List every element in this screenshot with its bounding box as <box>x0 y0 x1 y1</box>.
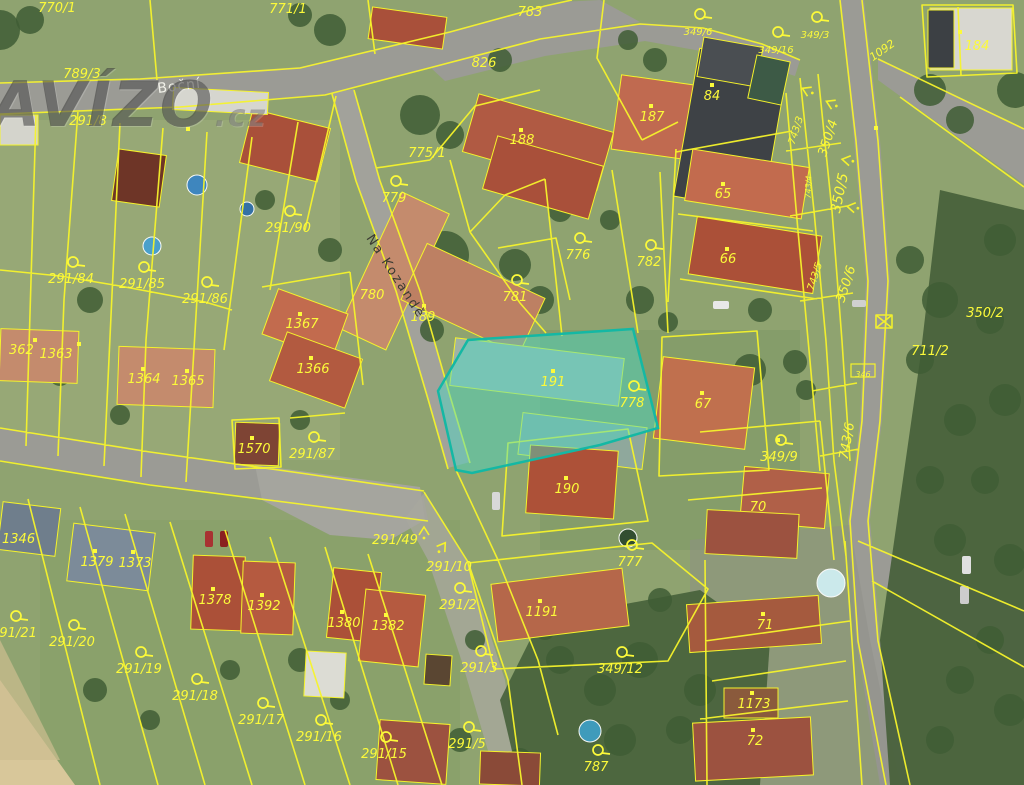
tree <box>971 466 999 494</box>
parcel-number: 291/20 <box>49 635 95 650</box>
parcel-number: 291/90 <box>265 221 311 236</box>
tree <box>314 14 346 46</box>
parcel-number: 291/49 <box>372 533 418 548</box>
parcel-label-1373: 1373 <box>118 556 151 571</box>
tree <box>290 410 310 430</box>
building-dot <box>186 127 190 131</box>
parcel-number: 1365 <box>171 374 204 389</box>
building <box>693 717 814 781</box>
parcel-label-789/3: 789/3 <box>63 67 100 82</box>
parcel-number: 291/2 <box>439 598 476 613</box>
parcel-number: 67 <box>695 397 712 412</box>
parcel-label-775/1: 775/1 <box>408 146 445 161</box>
tree <box>83 678 107 702</box>
parcel-number: 291/10 <box>426 560 472 575</box>
building-dot <box>551 369 555 373</box>
parcel-label-826: 826 <box>472 56 497 71</box>
building-dot <box>250 436 254 440</box>
parcel-label-67: 67 <box>695 397 712 412</box>
building-dot <box>761 612 765 616</box>
parcel-number: 70 <box>750 500 767 515</box>
tree <box>465 630 485 650</box>
parcel-number: 1392 <box>247 599 280 614</box>
parcel-number: 776 <box>566 248 591 263</box>
building <box>0 115 38 145</box>
building <box>112 149 167 207</box>
parcel-label-191: 191 <box>541 375 566 390</box>
parcel-label-1191: 1191 <box>525 605 558 620</box>
parcel-number: 65 <box>715 187 732 202</box>
tree <box>600 210 620 230</box>
parcel-number: 777 <box>618 555 644 570</box>
building <box>304 651 346 698</box>
tree <box>618 30 638 50</box>
tree <box>604 724 636 756</box>
parcel-number: 781 <box>503 290 528 305</box>
parcel-number: 188 <box>510 133 535 148</box>
tree <box>643 48 667 72</box>
parcel-number: 291/85 <box>119 277 165 292</box>
building <box>241 561 295 635</box>
building <box>479 751 540 785</box>
building-dot <box>874 126 878 130</box>
parcel-number: 291/87 <box>289 447 335 462</box>
parcel-number: 291/18 <box>172 689 218 704</box>
parcel-number: 743/4 <box>804 175 814 198</box>
pool <box>817 569 845 597</box>
tree <box>944 404 976 436</box>
building-dot <box>538 599 542 603</box>
parcel-number: 291/16 <box>296 730 342 745</box>
parcel-number: 349/12 <box>597 662 643 677</box>
tree <box>255 190 275 210</box>
parcel-number: 349/9 <box>760 450 797 465</box>
parcel-number: 783 <box>518 5 543 20</box>
building-dot <box>141 367 145 371</box>
parcel-label-771/1: 771/1 <box>269 2 306 17</box>
parcel-number: 789/3 <box>63 67 100 82</box>
car <box>205 531 213 547</box>
car <box>713 301 729 309</box>
parcel-label-783: 783 <box>518 5 543 20</box>
tree <box>77 287 103 313</box>
parcel-label-72: 72 <box>747 734 764 749</box>
pool <box>143 237 161 255</box>
tree <box>946 666 974 694</box>
parcel-number: 775/1 <box>408 146 445 161</box>
tree <box>110 405 130 425</box>
parcel-label-70: 70 <box>750 500 767 515</box>
tree <box>684 674 716 706</box>
parcel-label-1570: 1570 <box>237 442 270 457</box>
tree <box>976 626 1004 654</box>
tree <box>140 710 160 730</box>
parcel-label-780: 780 <box>360 288 385 303</box>
car <box>852 300 866 307</box>
parcel-number: 349/16 <box>758 45 793 56</box>
parcel-number: 770/1 <box>38 1 75 16</box>
parcel-label-1378: 1378 <box>198 593 231 608</box>
parcel-number: 350/2 <box>966 306 1003 321</box>
building-dot <box>131 550 135 554</box>
parcel-number: 787 <box>584 760 610 775</box>
parcel-number: 84 <box>704 89 721 104</box>
parcel-number: 1378 <box>198 593 231 608</box>
parcel-number: 1570 <box>237 442 270 457</box>
tree <box>896 246 924 274</box>
building <box>686 595 821 652</box>
building-dot <box>211 587 215 591</box>
parcel-number: 346 <box>855 370 870 379</box>
parcel-number: 1382 <box>371 619 404 634</box>
parcel-number: 72 <box>747 734 764 749</box>
tree <box>546 646 574 674</box>
car <box>962 556 971 574</box>
parcel-label-1367: 1367 <box>285 317 319 332</box>
parcel-number: 291/3 <box>460 661 497 676</box>
parcel-label-65: 65 <box>715 187 732 202</box>
map-canvas: 770/1771/1783826789/3291/8775/1779188187… <box>0 0 1024 785</box>
parcel-number: 71 <box>757 618 774 633</box>
building-dot <box>564 476 568 480</box>
parcel-number: 349/3 <box>801 30 830 41</box>
parcel-number: 779 <box>382 191 407 206</box>
parcel-label-362: 362 <box>9 343 34 358</box>
building-dot <box>93 549 97 553</box>
parcel-number: 782 <box>637 255 662 270</box>
parcel-number: 826 <box>472 56 497 71</box>
aerial-map-svg: 770/1771/1783826789/3291/8775/1779188187… <box>0 0 1024 785</box>
parcel-label-1379: 1379 <box>80 555 113 570</box>
tree <box>318 238 342 262</box>
tree <box>584 674 616 706</box>
tree <box>922 282 958 318</box>
parcel-label-1173: 1173 <box>737 697 770 712</box>
parcel-label-187: 187 <box>640 110 666 125</box>
building-dot <box>298 312 302 316</box>
building-dot <box>958 30 962 34</box>
parcel-number: 1363 <box>39 347 72 362</box>
parcel-number: 291/8 <box>69 114 106 129</box>
car <box>492 492 500 510</box>
building-dot <box>519 128 523 132</box>
parcel-number: 1366 <box>296 362 329 377</box>
building-dot <box>700 391 704 395</box>
parcel-number: 1191 <box>525 605 558 620</box>
parcel-number: 711/2 <box>911 344 948 359</box>
building-dot <box>77 342 81 346</box>
parcel-number: 778 <box>620 396 645 411</box>
building-dot <box>309 356 313 360</box>
parcel-number: 291/84 <box>48 272 94 287</box>
parcel-number: 1367 <box>285 317 319 332</box>
parcel-label-188: 188 <box>510 133 535 148</box>
parcel-number: 291/19 <box>116 662 162 677</box>
parcel-number: 780 <box>360 288 385 303</box>
parcel-label-1380: 1380 <box>327 616 360 631</box>
parcel-number: 190 <box>555 482 580 497</box>
parcel-label-1382: 1382 <box>371 619 404 634</box>
parcel-label-71: 71 <box>757 618 774 633</box>
parcel-label-1346: 1346 <box>2 532 35 547</box>
pool <box>579 720 601 742</box>
parcel-label-1366: 1366 <box>296 362 329 377</box>
parcel-label-770/1: 770/1 <box>38 1 75 16</box>
tree <box>748 298 772 322</box>
building <box>928 10 954 68</box>
tree <box>989 384 1021 416</box>
parcel-label-1365: 1365 <box>171 374 204 389</box>
parcel-label-291/8: 291/8 <box>69 114 106 129</box>
building-dot <box>751 728 755 732</box>
parcel-number: 291/86 <box>182 292 228 307</box>
parcel-number: 291/5 <box>448 737 485 752</box>
tree <box>926 726 954 754</box>
building-dot <box>260 593 264 597</box>
tree <box>783 350 807 374</box>
parcel-number: 66 <box>720 252 737 267</box>
building-dot <box>33 338 37 342</box>
car <box>960 586 969 604</box>
building-dot <box>384 613 388 617</box>
parcel-label-1392: 1392 <box>247 599 280 614</box>
parcel-number: 291/17 <box>238 713 284 728</box>
parcel-number: 291/21 <box>0 626 37 641</box>
tree <box>946 106 974 134</box>
parcel-number: 187 <box>640 110 666 125</box>
building-dot <box>725 247 729 251</box>
parcel-label-84: 84 <box>704 89 721 104</box>
building <box>705 510 799 559</box>
parcel-label-291/49: 291/49 <box>372 533 418 548</box>
parcel-label-1363: 1363 <box>39 347 72 362</box>
parcel-number: 1373 <box>118 556 151 571</box>
parcel-label-743/4: 743/4 <box>804 175 814 198</box>
building <box>424 654 452 686</box>
tree <box>984 224 1016 256</box>
parcel-label-1364: 1364 <box>127 372 160 387</box>
parcel-number: 1380 <box>327 616 360 631</box>
parcel-label-350/2: 350/2 <box>966 306 1003 321</box>
parcel-number: 1379 <box>80 555 113 570</box>
building-dot <box>721 182 725 186</box>
parcel-number: 1346 <box>2 532 35 547</box>
tree <box>934 524 966 556</box>
parcel-label-190: 190 <box>555 482 580 497</box>
parcel-label-291/10: 291/10 <box>426 560 472 575</box>
parcel-number: 184 <box>965 39 990 54</box>
parcel-number: 1364 <box>127 372 160 387</box>
tree <box>666 716 694 744</box>
parcel-number: 362 <box>9 343 34 358</box>
parcel-label-184: 184 <box>965 39 990 54</box>
building-dot <box>340 610 344 614</box>
building-dot <box>185 369 189 373</box>
tree <box>400 95 440 135</box>
parcel-number: 1173 <box>737 697 770 712</box>
parcel-number: 349/6 <box>684 27 713 38</box>
parcel-number: 771/1 <box>269 2 306 17</box>
building-dot <box>649 104 653 108</box>
tree <box>626 286 654 314</box>
building-dot <box>750 691 754 695</box>
tree <box>916 466 944 494</box>
parcel-number: 291/15 <box>361 747 407 762</box>
parcel-number: 191 <box>541 375 566 390</box>
parcel-label-66: 66 <box>720 252 737 267</box>
building-dot <box>710 83 714 87</box>
tree <box>648 588 672 612</box>
tree <box>220 660 240 680</box>
parcel-label-711/2: 711/2 <box>911 344 948 359</box>
